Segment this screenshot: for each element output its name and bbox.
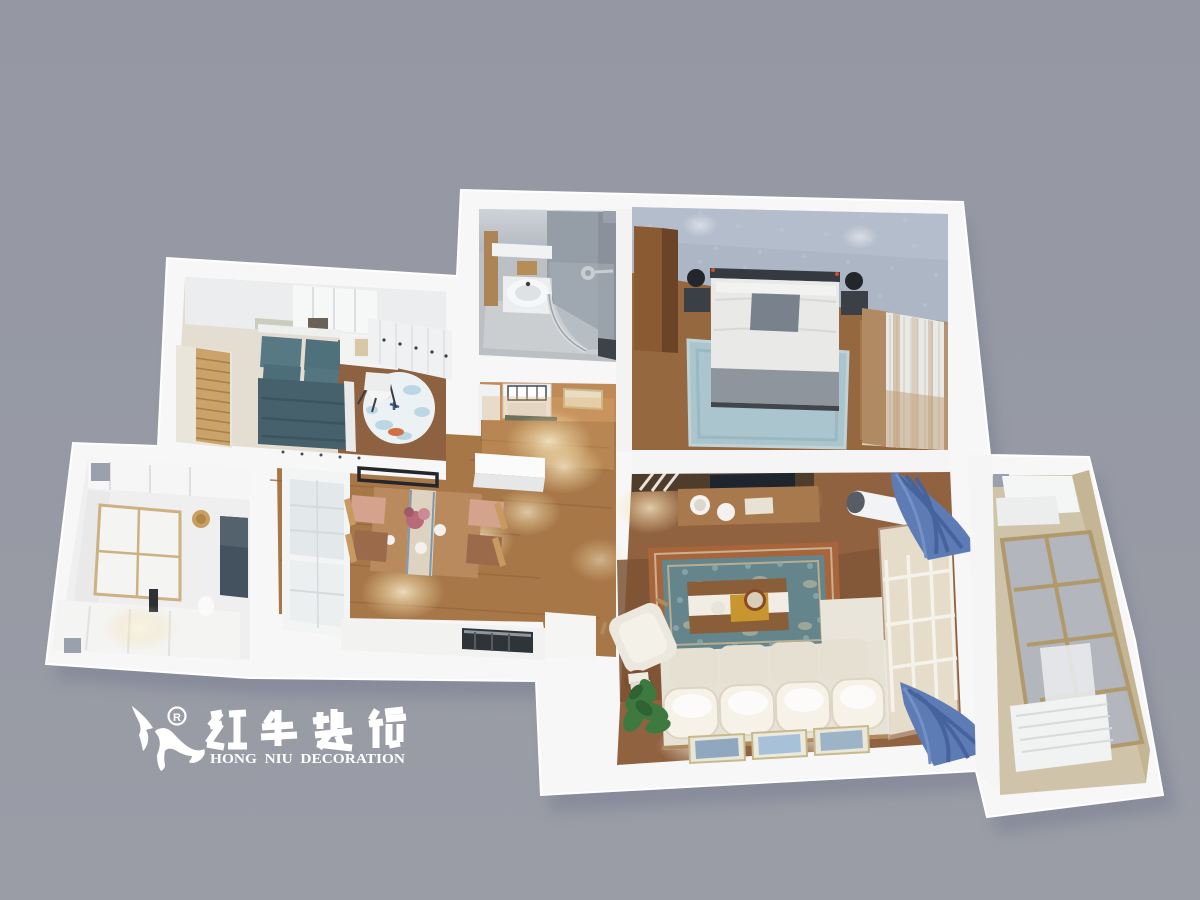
svg-text:R: R (173, 712, 181, 724)
svg-text:HONG NIU DECORATION: HONG NIU DECORATION (210, 751, 405, 766)
